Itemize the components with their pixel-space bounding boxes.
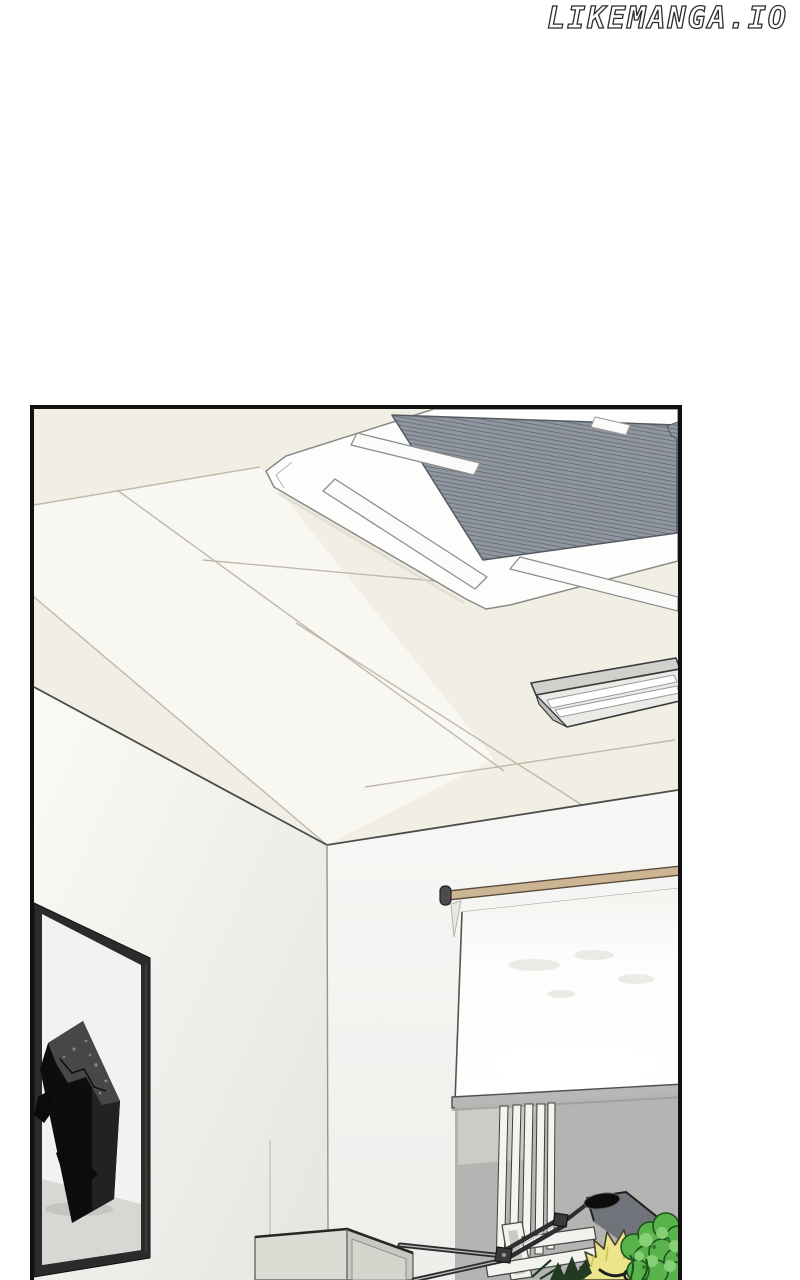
site-watermark: LIKEMANGA.IO [547,1,788,36]
manga-page: LIKEMANGA.IO [0,0,800,1280]
screen-rod-end-cap [440,886,451,905]
wall-picture-frame [34,903,150,1277]
wall-corner-edge [327,845,328,1231]
panel-illustration [34,409,678,1280]
comic-panel [30,405,682,1280]
lamp-wrist-joint [553,1213,568,1227]
